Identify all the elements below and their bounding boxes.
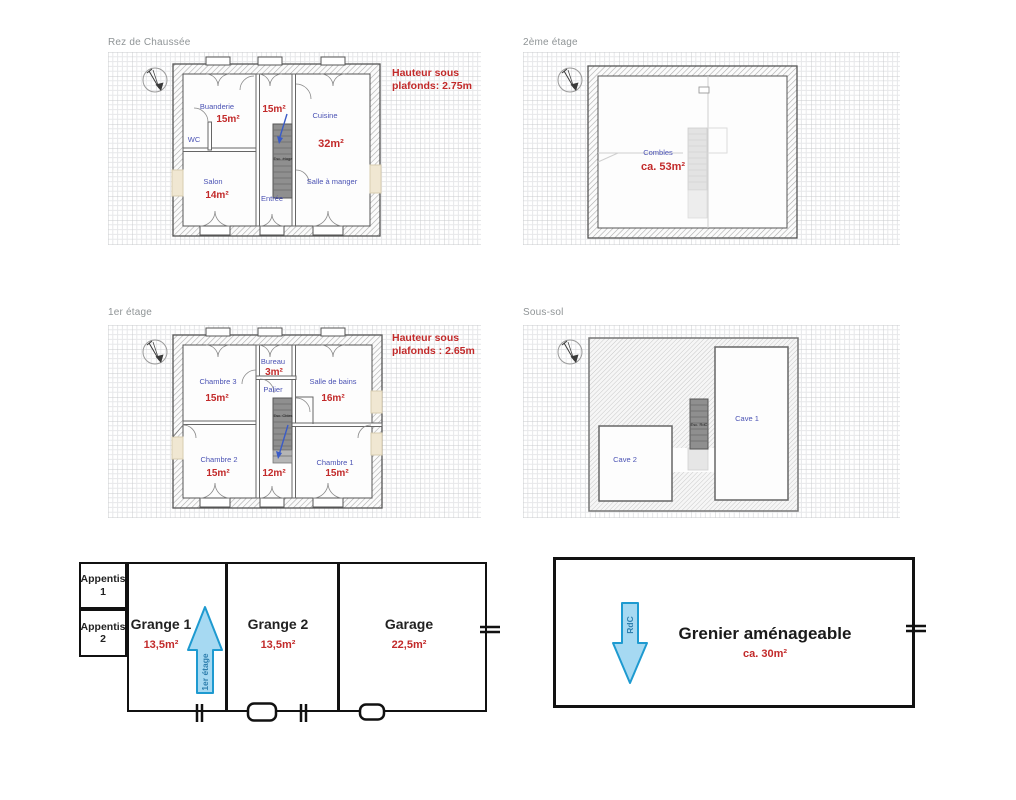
room-area-palier: 12m² [262, 468, 286, 479]
appentis1-box: Appentis 1 [79, 562, 127, 609]
appentis2-box: Appentis 2 [79, 609, 127, 657]
staircase [688, 399, 708, 470]
room-label-salon: Salon [203, 177, 222, 186]
grange1-label: Grange 1 [127, 616, 195, 632]
barn-door-symbol [248, 704, 276, 721]
room-area-chambre3: 15m² [205, 393, 229, 404]
room-label-chambre2: Chambre 2 [200, 455, 237, 464]
room-label-salle-a-manger: Salle à manger [307, 177, 358, 186]
room-label-wc: WC [188, 135, 201, 144]
ceiling-note-etage1-line1: Hauteur sous [392, 332, 459, 344]
chimney-box [699, 87, 709, 93]
plan-etage1: Esc. Cbles Bureau 3m² Chambre 3 15m² Pal… [108, 325, 481, 518]
garage-area: 22,5m² [359, 639, 459, 651]
room-label-cave1: Cave 1 [735, 414, 759, 423]
ceiling-note-etage1-line2: plafonds : 2.65m [392, 345, 475, 357]
barn-garage-building [127, 562, 487, 712]
grange1-area: 13,5m² [127, 639, 195, 651]
room-area-chambre2: 15m² [206, 468, 230, 479]
stairs-label-soussol: Esc. RdC [691, 422, 708, 427]
barn-right-opening-tick [478, 621, 502, 639]
room-label-sdb: Salle de bains [309, 377, 356, 386]
cave1-room [715, 347, 788, 500]
grenier-label: Grenier aménageable [615, 624, 915, 644]
room-area-salon: 14m² [205, 190, 229, 201]
ceiling-note-rdc-line2: plafonds: 2.75m [392, 80, 472, 92]
staircase [273, 398, 292, 463]
barn-bottom-openings [127, 700, 487, 726]
stairs-down-arrow-label: RdC [625, 616, 635, 633]
room-label-chambre1: Chambre 1 [316, 458, 353, 467]
room-area-combles: ca. 53m² [641, 161, 685, 173]
garage-door-symbol [360, 705, 384, 720]
room-area-chambre1: 15m² [325, 468, 349, 479]
stairs-label-etage1: Esc. Cbles [273, 413, 292, 418]
room-area-buanderie: 15m² [216, 114, 240, 125]
plan-title-etage1: 1er étage [108, 307, 152, 318]
room-label-buanderie: Buanderie [200, 102, 234, 111]
appentis1-label: Appentis 1 [81, 573, 126, 597]
room-label-combles: Combles [643, 148, 673, 157]
plan-title-etage2: 2ème étage [523, 37, 578, 48]
plan-rdc: Esc. étage Buanderie 15m² WC 15m² Cuisin… [108, 52, 481, 245]
plan-etage2: Combles ca. 53m² [523, 52, 900, 245]
room-label-entree: Entrée [261, 194, 283, 203]
stairs-down-arrow: RdC [611, 600, 649, 686]
grange2-label: Grange 2 [228, 616, 328, 632]
plan-title-rdc: Rez de Chaussée [108, 37, 191, 48]
grenier-right-opening-tick [904, 620, 928, 638]
plan-soussol: Esc. RdC Cave 1 Cave 2 [523, 325, 900, 518]
plan-title-soussol: Sous-sol [523, 307, 564, 318]
room-label-cave2: Cave 2 [613, 455, 637, 464]
stairs-up-arrow: 1er étage [186, 604, 224, 696]
room-area-hall: 15m² [262, 104, 286, 115]
room-label-chambre3: Chambre 3 [199, 377, 236, 386]
stairs-up-arrow-label: 1er étage [200, 653, 210, 691]
room-area-sdb: 16m² [321, 393, 345, 404]
grange1-grange2-wall [225, 564, 228, 710]
room-label-bureau: Bureau [261, 357, 285, 366]
room-label-palier: Palier [263, 385, 283, 394]
room-label-cuisine: Cuisine [312, 111, 337, 120]
ceiling-note-rdc-line1: Hauteur sous [392, 67, 459, 79]
staircase-faint [688, 128, 707, 218]
grenier-area: ca. 30m² [615, 648, 915, 660]
stairs-label-rdc: Esc. étage [274, 156, 294, 161]
garage-label: Garage [359, 616, 459, 632]
grange2-area: 13,5m² [228, 639, 328, 651]
room-area-cuisine: 32m² [318, 138, 344, 150]
grange2-garage-wall [337, 564, 340, 710]
floor-plan-document: Rez de Chaussée [0, 0, 1016, 800]
room-area-bureau: 3m² [265, 367, 283, 378]
appentis2-label: Appentis 2 [81, 621, 126, 645]
